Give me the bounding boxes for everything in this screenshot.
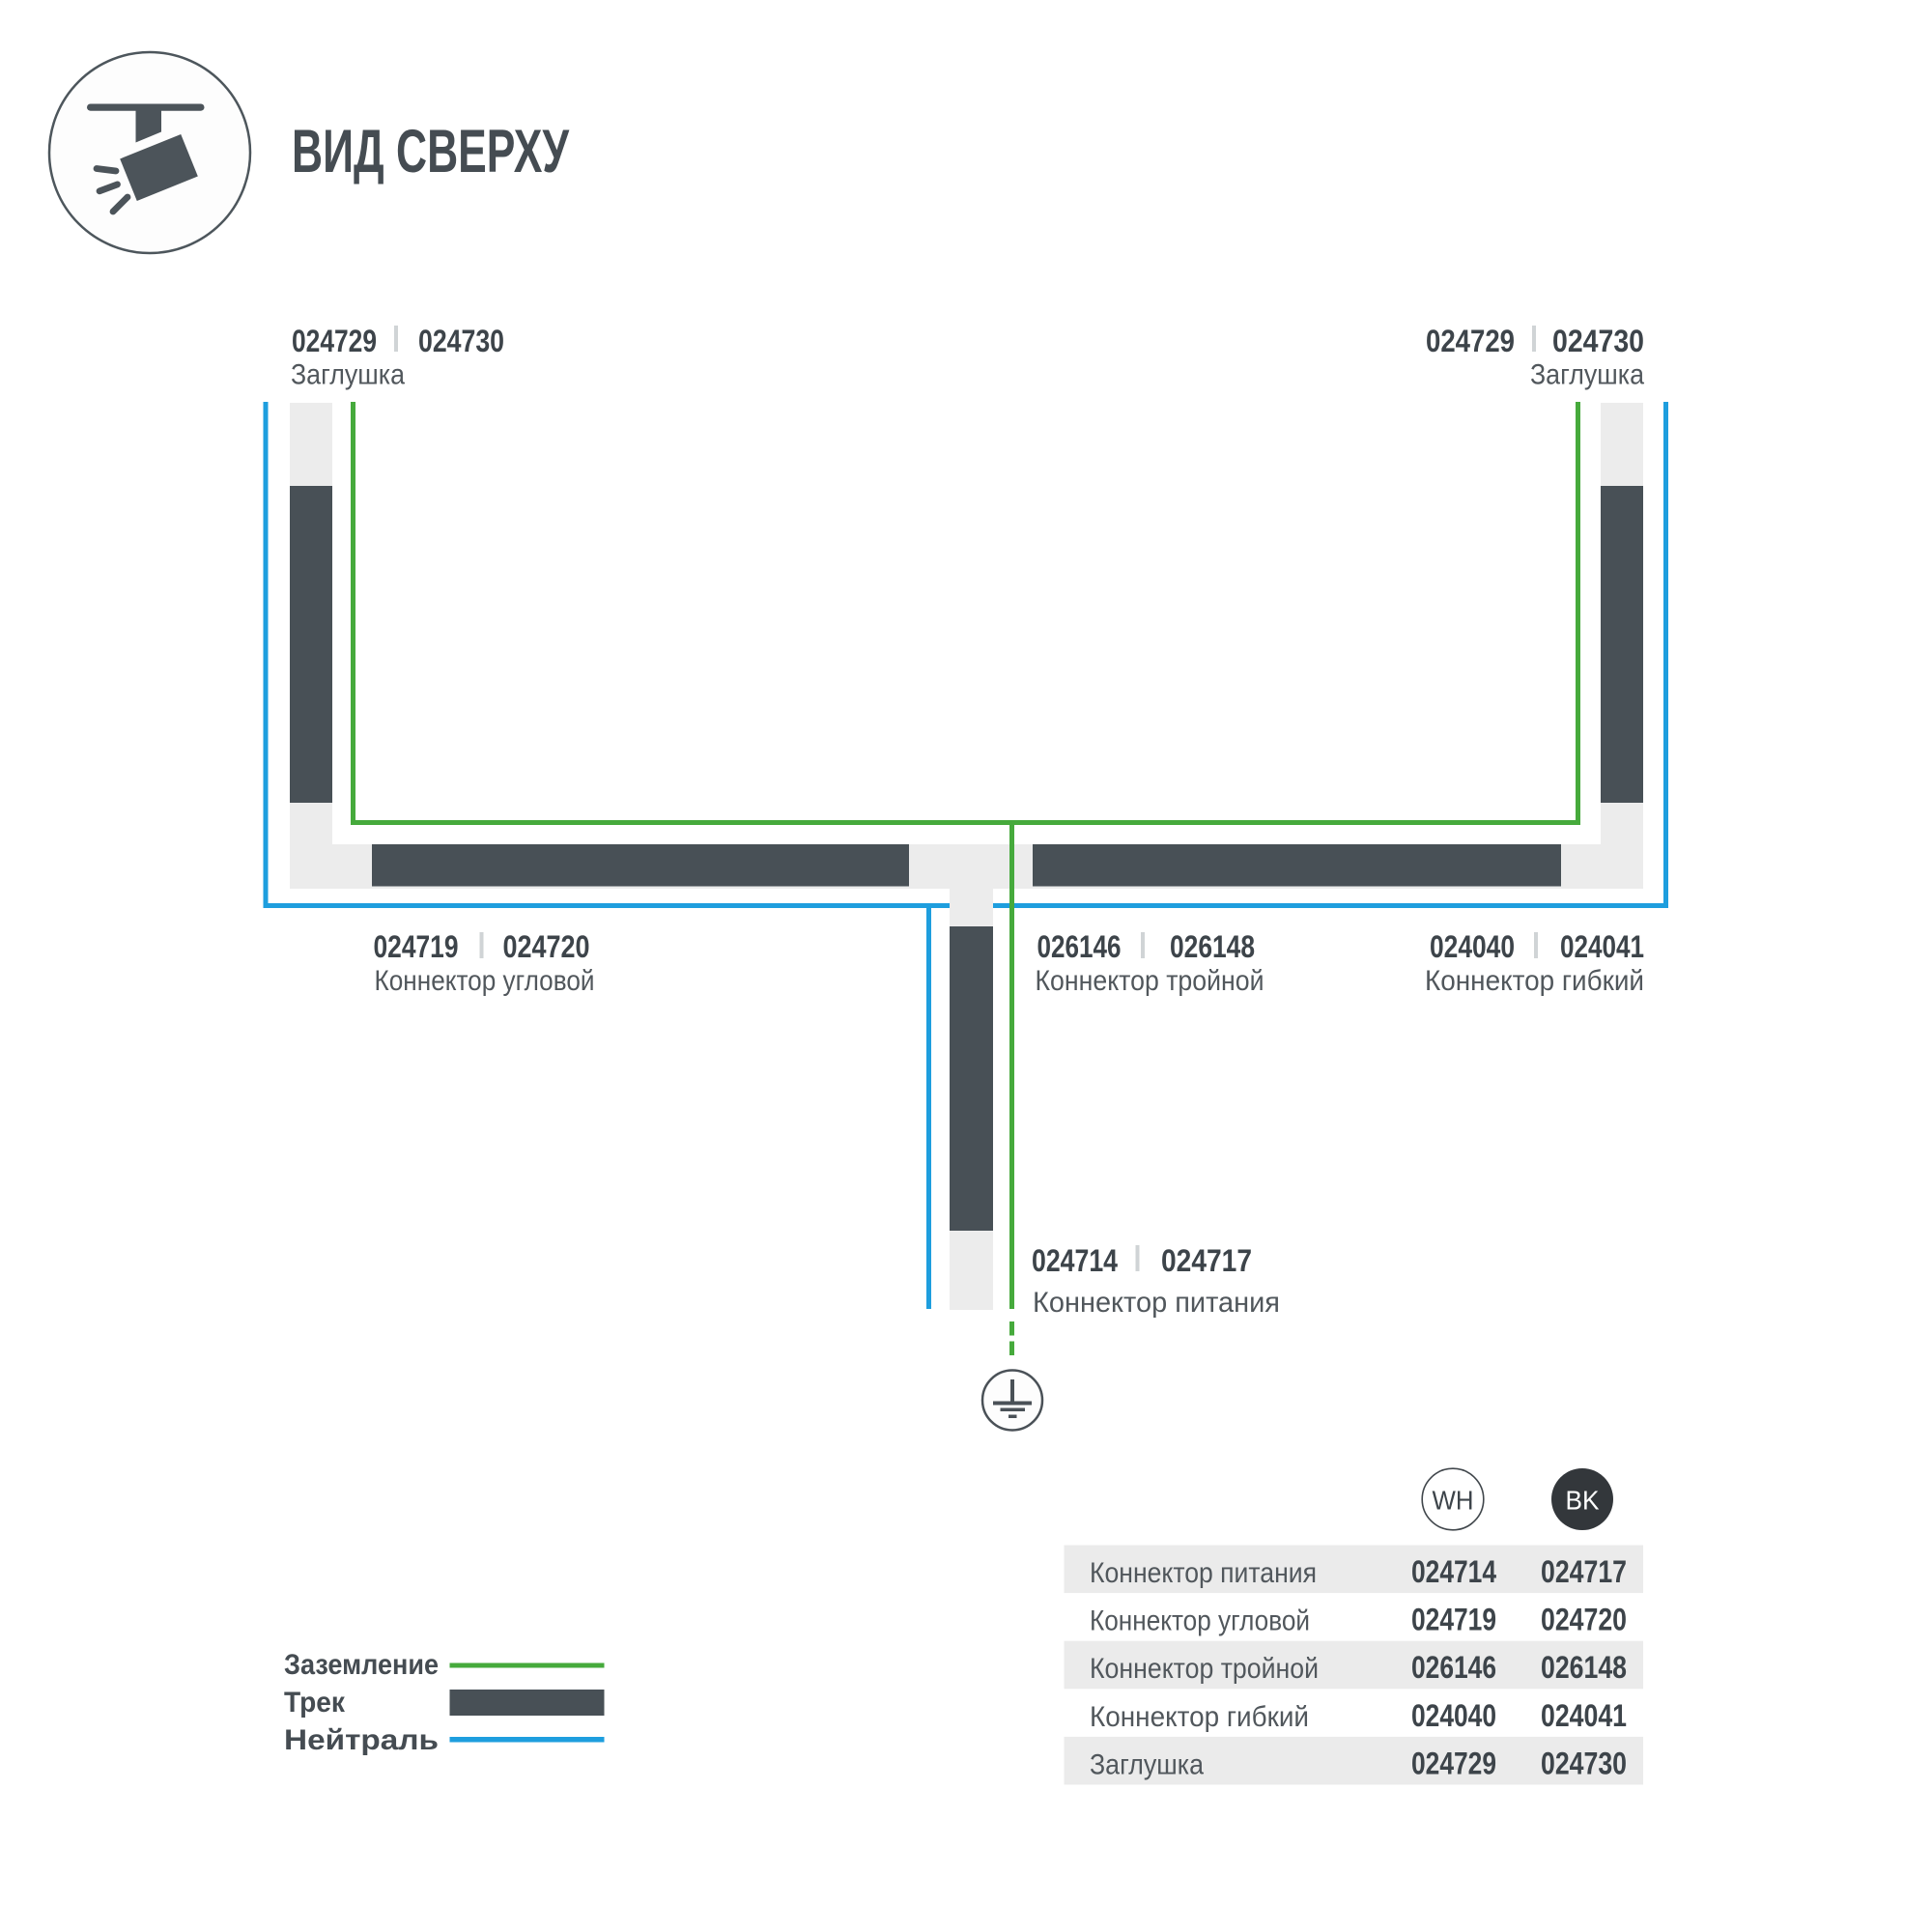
svg-text:Коннектор угловой: Коннектор угловой [1090,1605,1310,1637]
svg-text:WH: WH [1433,1486,1474,1516]
svg-text:Трек: Трек [284,1687,346,1719]
svg-text:024730: 024730 [418,324,504,358]
svg-text:026146: 026146 [1037,929,1122,964]
svg-text:026148: 026148 [1170,929,1255,964]
svg-text:024729: 024729 [1426,324,1515,358]
svg-text:Коннектор тройной: Коннектор тройной [1036,965,1264,997]
svg-text:026148: 026148 [1541,1650,1627,1685]
svg-text:024720: 024720 [503,929,590,964]
svg-text:Заглушка: Заглушка [1090,1748,1204,1780]
svg-text:024041: 024041 [1560,929,1644,964]
svg-text:Коннектор тройной: Коннектор тройной [1090,1653,1319,1685]
svg-text:024717: 024717 [1541,1554,1627,1589]
svg-text:026146: 026146 [1411,1650,1496,1685]
svg-text:024729: 024729 [1411,1746,1496,1780]
svg-text:024719: 024719 [1411,1603,1496,1637]
svg-text:Коннектор гибкий: Коннектор гибкий [1425,965,1644,997]
svg-text:024719: 024719 [374,929,459,964]
svg-text:024040: 024040 [1430,929,1515,964]
svg-text:Коннектор гибкий: Коннектор гибкий [1090,1701,1309,1733]
svg-text:Коннектор угловой: Коннектор угловой [375,965,595,997]
svg-text:Заглушка: Заглушка [1530,359,1644,391]
svg-text:024729: 024729 [292,324,377,358]
svg-text:Нейтраль: Нейтраль [284,1724,439,1756]
svg-text:Коннектор питания: Коннектор питания [1090,1557,1317,1589]
svg-text:024714: 024714 [1032,1243,1118,1278]
svg-text:Коннектор питания: Коннектор питания [1033,1287,1280,1319]
svg-text:024040: 024040 [1411,1698,1496,1733]
svg-text:ВИД СВЕРХУ: ВИД СВЕРХУ [292,118,570,185]
svg-text:024730: 024730 [1541,1746,1627,1780]
svg-text:024730: 024730 [1552,324,1644,358]
svg-text:BK: BK [1566,1486,1600,1516]
svg-text:Заглушка: Заглушка [291,359,405,391]
svg-text:024714: 024714 [1411,1554,1496,1589]
svg-text:Заземление: Заземление [284,1649,439,1681]
svg-text:024717: 024717 [1161,1243,1252,1278]
svg-text:024041: 024041 [1541,1698,1627,1733]
svg-text:024720: 024720 [1541,1603,1627,1637]
